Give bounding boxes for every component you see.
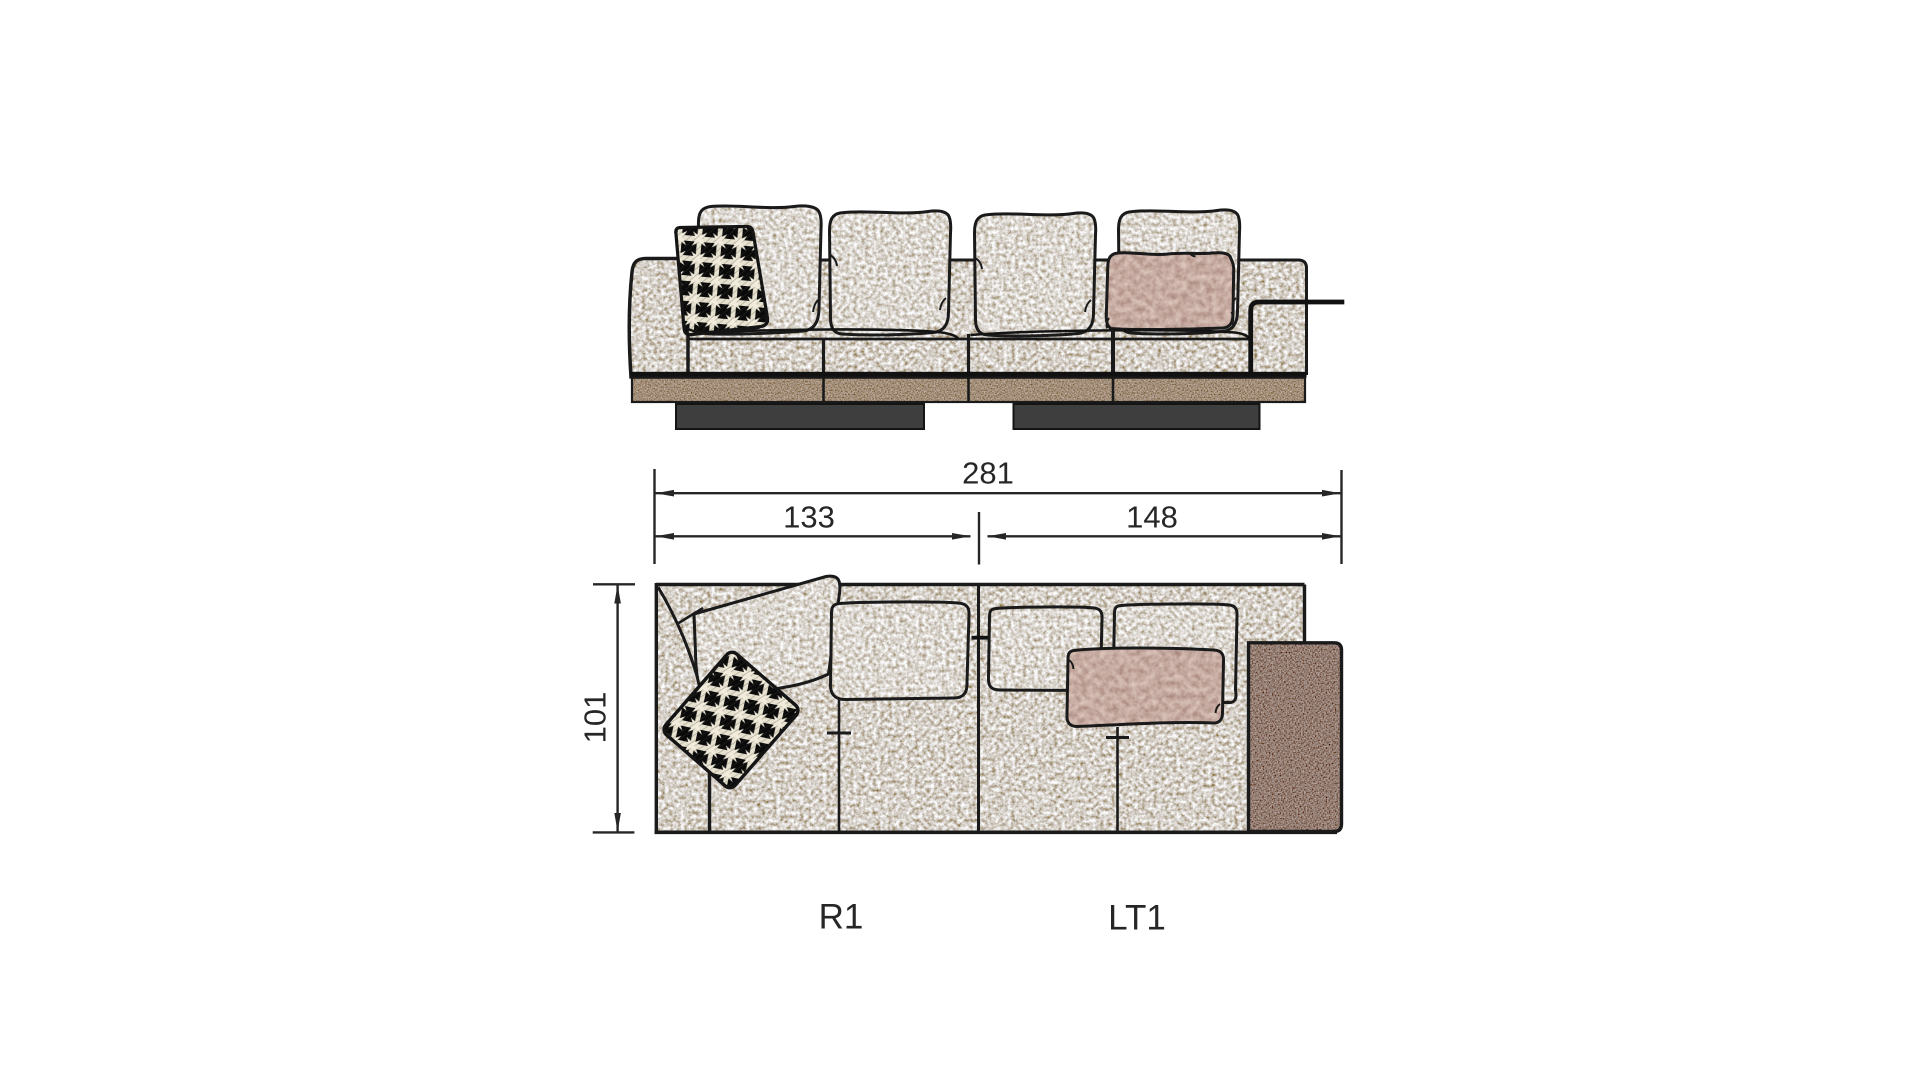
svg-text:281: 281 <box>962 456 1014 491</box>
svg-text:148: 148 <box>1126 500 1178 535</box>
svg-text:133: 133 <box>783 500 835 535</box>
svg-text:R1: R1 <box>819 898 864 937</box>
svg-text:LT1: LT1 <box>1108 899 1166 938</box>
svg-text:101: 101 <box>578 692 613 744</box>
